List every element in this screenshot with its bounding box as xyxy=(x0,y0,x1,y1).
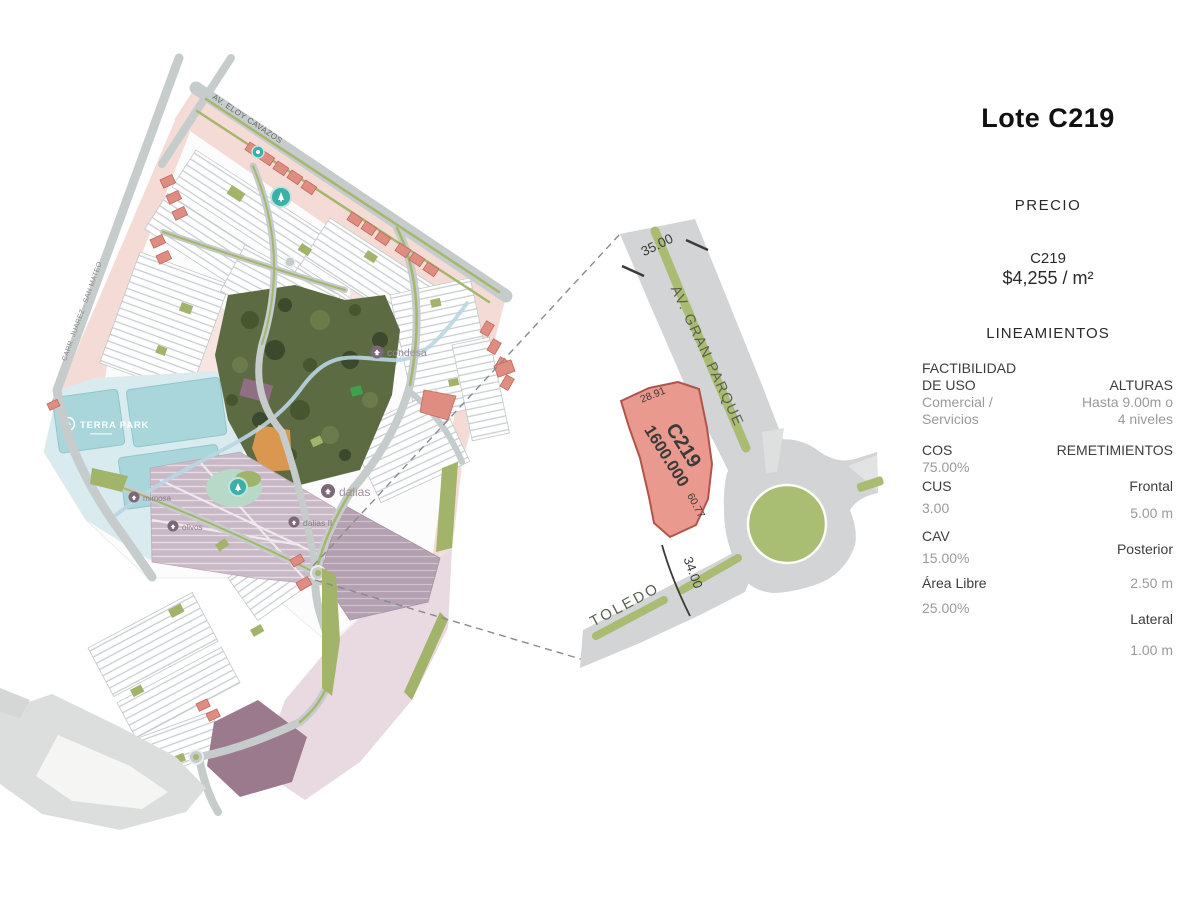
precio-heading: PRECIO xyxy=(920,197,1176,214)
lateral-label: Lateral xyxy=(1023,611,1173,627)
frontal-label: Frontal xyxy=(1023,478,1173,494)
frontal-value: 5.00 m xyxy=(1023,505,1173,521)
dalias2-label: dalias II xyxy=(303,518,332,528)
west1-label: mimosa xyxy=(143,494,172,503)
posterior-label: Posterior xyxy=(1023,541,1173,557)
west2-label: olivos xyxy=(182,523,202,532)
lot-detail-view: C219 1600.000 28.91 60.77 35.00 34.00 AV… xyxy=(580,219,884,668)
roundabout-green-circle xyxy=(748,485,826,563)
alturas-value-line1: Hasta 9.00m o xyxy=(1023,394,1173,410)
condesa-label: condesa xyxy=(387,347,427,359)
precio-value: $4,255 / m² xyxy=(920,268,1176,289)
lineamientos-heading: LINEAMIENTOS xyxy=(920,325,1176,342)
masterplan-map: TERRA PARK xyxy=(0,58,515,830)
lateral-value: 1.00 m xyxy=(1023,642,1173,658)
terra-park-label: TERRA PARK xyxy=(80,420,149,431)
dalias-label: dalias xyxy=(339,485,370,499)
alturas-label: ALTURAS xyxy=(1023,377,1173,393)
factibilidad-label-line1: FACTIBILIDAD xyxy=(922,360,1042,376)
posterior-value: 2.50 m xyxy=(1023,575,1173,591)
lot-sheet: TERRA PARK xyxy=(0,0,1200,900)
precio-lot-id: C219 xyxy=(920,250,1176,267)
cos-value: 75.00% xyxy=(922,459,1042,475)
page-title: Lote C219 xyxy=(920,103,1176,134)
alturas-value-line2: 4 niveles xyxy=(1023,411,1173,427)
remetimientos-label: REMETIMIENTOS xyxy=(1023,442,1173,458)
